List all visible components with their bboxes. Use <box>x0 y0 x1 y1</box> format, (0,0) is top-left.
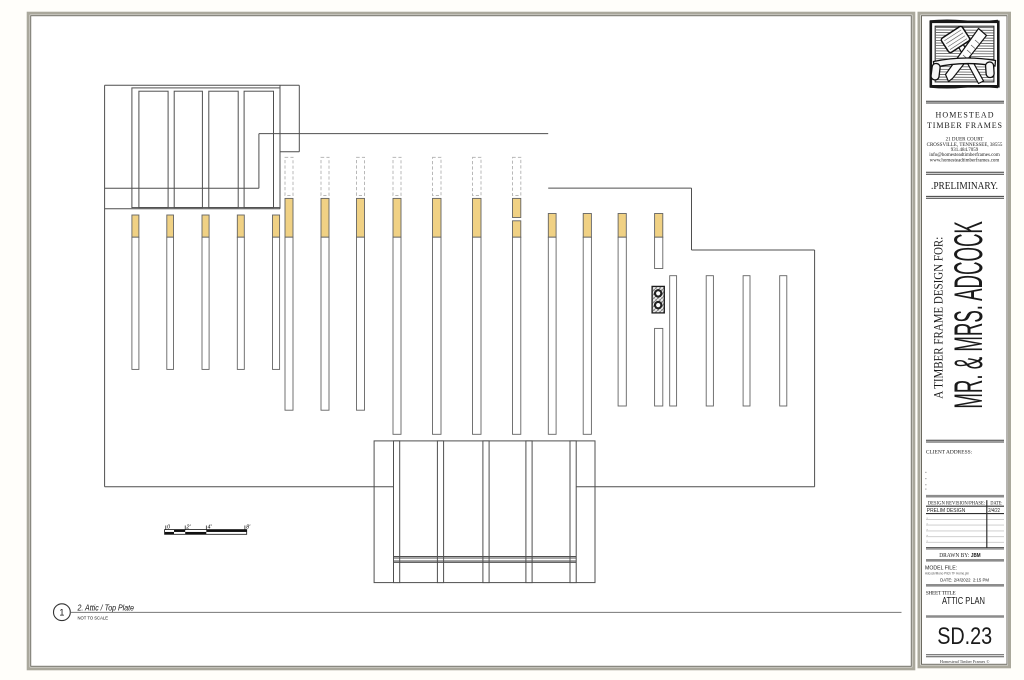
svg-text:HOMESTEAD: HOMESTEAD <box>936 110 994 119</box>
svg-text:JBM: JBM <box>971 553 981 559</box>
svg-text:CLIENT ADDRESS:: CLIENT ADDRESS: <box>926 450 973 456</box>
svg-text:SD.23: SD.23 <box>937 623 992 650</box>
svg-text:Homestead Timber Frames ©: Homestead Timber Frames © <box>940 659 990 664</box>
svg-text:1: 1 <box>59 607 64 617</box>
svg-text:.PRELIMINARY.: .PRELIMINARY. <box>931 180 998 192</box>
svg-text:2. Attic / Top Plate: 2. Attic / Top Plate <box>77 602 134 612</box>
svg-text:MR. & MRS. ADCOCK: MR. & MRS. ADCOCK <box>947 221 991 409</box>
svg-text:ATTIC PLAN: ATTIC PLAN <box>942 596 985 607</box>
svg-text:Adcock/Mono Pitch TF Home.pln: Adcock/Mono Pitch TF Home.pln <box>925 571 969 575</box>
svg-text:NOT TO SCALE: NOT TO SCALE <box>78 615 109 621</box>
svg-text:DRAWN BY:: DRAWN BY: <box>939 553 969 559</box>
svg-text:A TIMBER FRAME DESIGN FOR:: A TIMBER FRAME DESIGN FOR: <box>931 237 945 399</box>
svg-text:TIMBER FRAMES: TIMBER FRAMES <box>927 121 1002 130</box>
svg-text:DATE: 2/4/2022 2:15 PM: DATE: 2/4/2022 2:15 PM <box>940 577 989 583</box>
svg-text:www.homesteadtimberframes.com: www.homesteadtimberframes.com <box>930 158 1000 163</box>
